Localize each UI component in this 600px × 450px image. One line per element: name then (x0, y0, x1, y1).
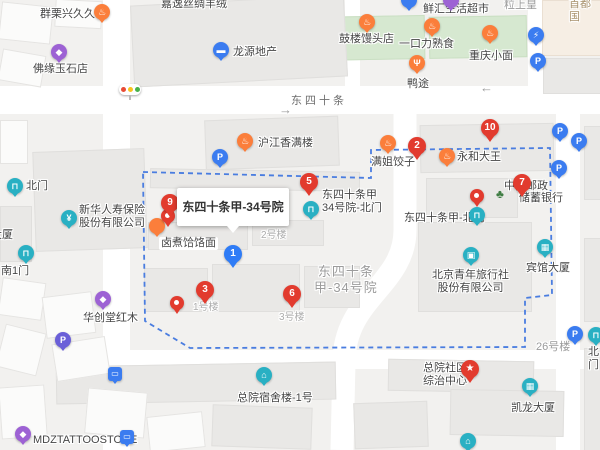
shopping-bag-icon: ◆ (51, 44, 67, 60)
marker-jade-shop[interactable]: ◆ (51, 44, 67, 60)
marker-south-gate-1[interactable]: ⊓ (18, 245, 34, 261)
label-north-gate-left[interactable]: 北门 (26, 180, 48, 193)
label-area-compound: 东四十条 甲-34号院 (314, 264, 378, 296)
pin-jia-north-gate[interactable] (470, 189, 484, 203)
arrow-east-icon: → (279, 103, 292, 116)
label-daxia-clipped: 大厦 (0, 229, 13, 242)
marker-community-center-star[interactable]: ★ (461, 360, 479, 378)
parking-icon: P (552, 123, 568, 139)
food-icon: ♨ (237, 133, 253, 149)
label-shoudu-clipped: 首都国 (569, 0, 600, 24)
marker-parking-3[interactable]: P (552, 123, 568, 139)
parking-entrance-icon: P (551, 160, 567, 176)
thumbs-up-icon: ♨ (380, 135, 396, 151)
yuan-icon: ¥ (61, 210, 77, 226)
marker-yikouli-deli[interactable]: ♨ (424, 18, 440, 34)
label-yatu[interactable]: 鸭途 (407, 78, 429, 91)
restaurant-icon: Ψ (409, 55, 425, 71)
marker-2[interactable]: 2 (408, 137, 426, 155)
red-light-icon (121, 87, 126, 92)
label-north-gate-right-clipped[interactable]: 北门 (588, 346, 600, 372)
building-icon: ▦ (522, 378, 538, 394)
marker-huachuangtang[interactable]: ◆ (95, 291, 111, 307)
building-icon: ▦ (537, 239, 553, 255)
food-icon: ♨ (359, 14, 375, 30)
marker-34-north-gate[interactable]: ⊓ (303, 201, 319, 217)
food-icon: ♨ (439, 148, 455, 164)
arrow-west-icon: ← (480, 81, 493, 94)
label-huachuangtang[interactable]: 华创堂红木 (83, 312, 138, 325)
marker-youth-travel[interactable]: ▣ (463, 247, 479, 263)
marker-jia-north-gate[interactable]: ⊓ (469, 207, 485, 223)
marker-gulou-mantou[interactable]: ♨ (359, 14, 375, 30)
marker-hujiang[interactable]: ♨ (237, 133, 253, 149)
label-lishanghuang: 粒上皇 (504, 0, 537, 12)
food-icon: ♨ (424, 18, 440, 34)
marker-charging-parking[interactable]: ⚡ (528, 27, 544, 43)
green-light-icon (135, 87, 140, 92)
marker-parking-entrance[interactable]: P (551, 160, 567, 176)
label-chongqing-noodles[interactable]: 重庆小面 (469, 50, 513, 63)
marker-chongqing-noodles[interactable]: ♨ (482, 25, 498, 41)
marker-parking-2[interactable]: P (212, 149, 228, 165)
tooltip-title: 东四十条甲-34号院 (182, 200, 283, 214)
marker-yatu[interactable]: Ψ (409, 55, 425, 71)
label-kailong-tower[interactable]: 凯龙大厦 (511, 402, 555, 415)
parking-icon: P (212, 149, 228, 165)
tree-icon: ♣ (496, 188, 504, 201)
label-longyuan-estate[interactable]: 龙源地产 (233, 46, 277, 59)
label-jiayi-silk[interactable]: 嘉逸丝绸羊绒 (161, 0, 227, 11)
gate-icon: ⊓ (469, 207, 485, 223)
marker-parking-4[interactable]: P (571, 133, 587, 149)
label-dorm-1[interactable]: 总院宿舍楼-1号 (237, 392, 313, 405)
gate-icon: ⊓ (588, 327, 600, 343)
info-tooltip[interactable]: 东四十条甲-34号院 (177, 188, 289, 226)
marker-yonghe-king[interactable]: ♨ (439, 148, 455, 164)
bus-icon: ▭ (108, 367, 122, 381)
label-bldg-2: 2号楼 (261, 229, 287, 242)
label-road-dongsishitiao: 东四十条 (291, 95, 347, 108)
marker-kailong-tower[interactable]: ▦ (522, 378, 538, 394)
bus-stop-marker-1[interactable]: ▭ (108, 367, 122, 381)
marker-parking-purple[interactable]: P (55, 332, 71, 348)
marker-parking-1[interactable]: P (530, 53, 546, 69)
yellow-light-icon (128, 87, 133, 92)
pin-bottom-left[interactable] (170, 296, 184, 310)
traffic-light-icon[interactable] (119, 84, 141, 95)
label-luzhu-noodles[interactable]: 卤煮饸饹面 (159, 237, 218, 250)
marker-dorm-1[interactable]: ⌂ (256, 367, 272, 383)
map-canvas[interactable]: 群栗兴久久鸭嘉逸丝绸羊绒佛缘玉石店龙源地产鼓楼馒头店鲜汇生活超市粒上皇首都国一口… (0, 0, 600, 450)
marker-3[interactable]: 3 (196, 281, 214, 299)
briefcase-icon: ▣ (463, 247, 479, 263)
label-bldg-26: 26号楼 (536, 341, 570, 354)
gate-icon: ⊓ (303, 201, 319, 217)
marker-7[interactable]: 7 (513, 174, 531, 192)
bus-icon: ▭ (120, 430, 134, 444)
food-icon: ♨ (94, 4, 110, 20)
label-34-north-gate[interactable]: 东四十条甲 34号院-北门 (322, 189, 382, 215)
company-icon: ▬ (213, 42, 229, 58)
parking-icon: P (530, 53, 546, 69)
marker-north-gate-right-clipped[interactable]: ⊓ (588, 327, 600, 343)
marker-1[interactable]: 1 (224, 245, 242, 263)
poi-icon: ⌂ (460, 433, 476, 449)
marker-tattoo-store[interactable]: ◆ (15, 426, 31, 442)
gate-icon: ⊓ (7, 178, 23, 194)
parking-icon: P (567, 326, 583, 342)
marker-manjie-dumplings[interactable]: ♨ (380, 135, 396, 151)
marker-6[interactable]: 6 (283, 285, 301, 303)
marker-5[interactable]: 5 (300, 173, 318, 191)
gate-icon: ⊓ (18, 245, 34, 261)
label-xinhua-insurance[interactable]: 新华人寿保险 股份有限公司 (79, 204, 145, 230)
marker-parking-5[interactable]: P (567, 326, 583, 342)
parking-icon: P (571, 133, 587, 149)
marker-xinhua-insurance[interactable]: ¥ (61, 210, 77, 226)
label-south-gate-1[interactable]: 南1门 (1, 265, 29, 278)
label-yikouli-deli[interactable]: 一口力熟食 (399, 38, 454, 51)
shopping-bag-icon: ◆ (95, 291, 111, 307)
label-gulou-mantou[interactable]: 鼓楼馒头店 (339, 33, 394, 46)
marker-north-gate-left[interactable]: ⊓ (7, 178, 23, 194)
marker-bottom-clipped[interactable]: ⌂ (460, 433, 476, 449)
label-yonghe-king[interactable]: 永和大王 (457, 151, 501, 164)
label-binguan-tower[interactable]: 宾馆大厦 (526, 262, 570, 275)
marker-longyuan[interactable]: ▬ (213, 42, 229, 58)
bed-icon: ⌂ (256, 367, 272, 383)
label-bldg-3: 3号楼 (279, 311, 305, 324)
ev-charging-icon: ⚡ (528, 27, 544, 43)
label-foyuan-jade[interactable]: 佛缘玉石店 (33, 63, 88, 76)
bus-stop-marker-2[interactable]: ▭ (120, 430, 134, 444)
marker-qunli-duck[interactable]: ♨ (94, 4, 110, 20)
marker-binguan-tower[interactable]: ▦ (537, 239, 553, 255)
parking-icon: P (55, 332, 71, 348)
food-icon: ♨ (482, 25, 498, 41)
marker-10[interactable]: 10 (481, 119, 499, 137)
shopping-bag-icon: ◆ (15, 426, 31, 442)
label-youth-travel[interactable]: 北京青年旅行社 股份有限公司 (432, 269, 509, 295)
label-hujiang[interactable]: 沪江香满楼 (258, 137, 313, 150)
label-manjie-dumplings[interactable]: 满姐饺子 (371, 156, 415, 169)
